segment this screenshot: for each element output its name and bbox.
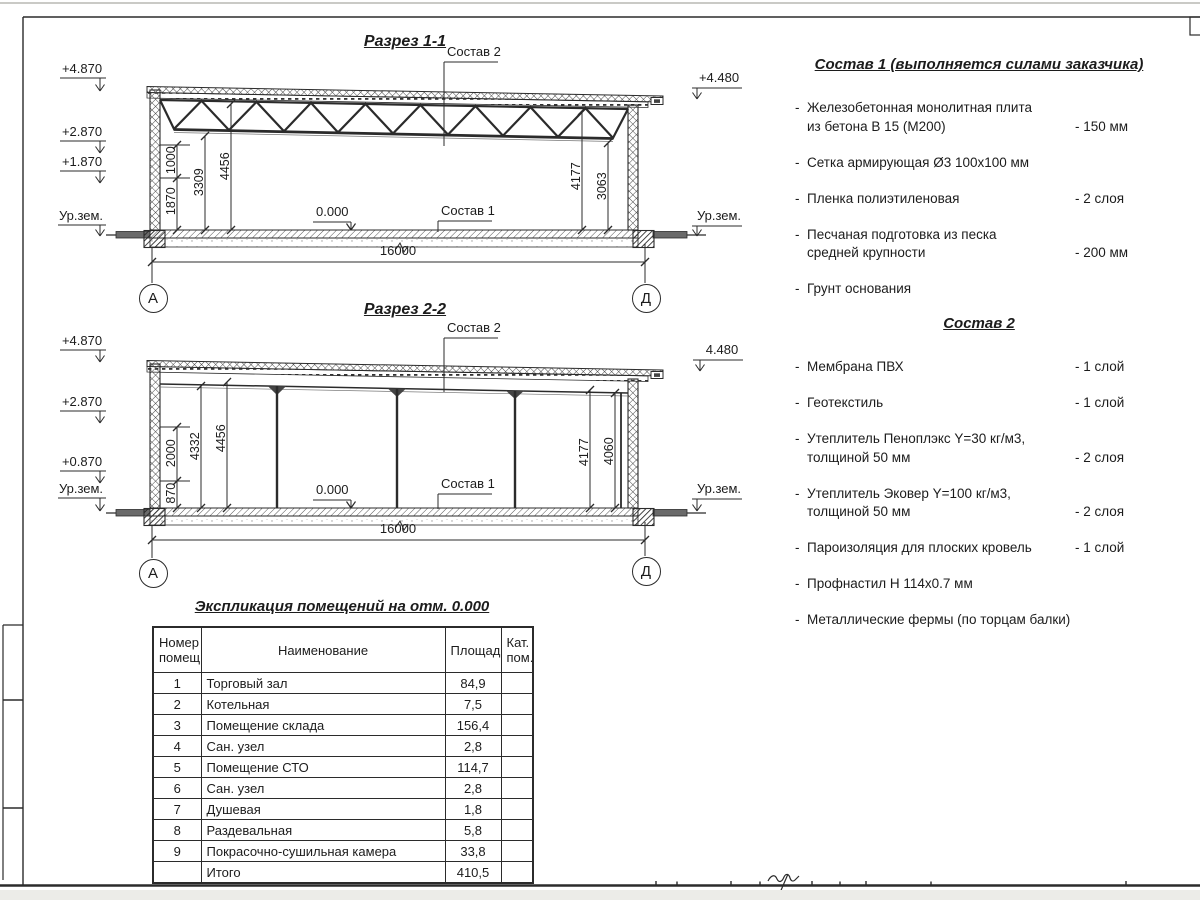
material-name: Профнастил Н 114х0.7 мм (807, 575, 1075, 594)
material-name: Песчаная подготовка из песка средней кру… (807, 226, 1075, 264)
dimension-label: 1870 (164, 181, 178, 221)
table-row: 4 Сан. узел 2,8 (153, 736, 533, 757)
material-item: - Железобетонная монолитная плита из бет… (795, 99, 1163, 137)
material-name: Сетка армирующая Ø3 100х100 мм (807, 154, 1075, 173)
material-name: Мембрана ПВХ (807, 358, 1075, 377)
cell-room-name: Торговый зал (201, 673, 445, 694)
cell-room-number: 2 (153, 694, 201, 715)
material-item: - Профнастил Н 114х0.7 мм (795, 575, 1163, 594)
axis-letter: Д (641, 563, 651, 580)
ground-level-label: Ур.зем. (694, 209, 744, 224)
ground-level-label: Ур.зем. (694, 482, 744, 497)
item-dash: - (795, 430, 807, 468)
cell-area: 7,5 (445, 694, 501, 715)
material-item: - Мембрана ПВХ - 1 слой (795, 358, 1163, 377)
zero-level-label: 0.000 (316, 483, 349, 498)
cell-category (501, 862, 533, 884)
zero-level-label: 0.000 (316, 205, 349, 220)
dimension-label: 4177 (569, 156, 583, 196)
cell-room-number: 4 (153, 736, 201, 757)
cell-area: 2,8 (445, 736, 501, 757)
cell-room-number: 9 (153, 841, 201, 862)
cell-room-name: Покрасочно-сушильная камера (201, 841, 445, 862)
item-dash: - (795, 575, 807, 594)
table-row: 5 Помещение СТО 114,7 (153, 757, 533, 778)
header-room-name: Наименование (201, 627, 445, 673)
dimension-label: 4456 (214, 418, 228, 458)
table-row: 6 Сан. узел 2,8 (153, 778, 533, 799)
leader-label-sostav2: Состав 2 (447, 321, 501, 336)
cell-area: 84,9 (445, 673, 501, 694)
material-value: - 1 слой (1075, 394, 1163, 413)
dimension-label: 2000 (164, 433, 178, 473)
item-dash: - (795, 539, 807, 558)
cell-room-number: 3 (153, 715, 201, 736)
table-header-row: Номер помещ. Наименование Площадь Кат. п… (153, 627, 533, 673)
cell-room-name: Итого (201, 862, 445, 884)
dimension-label: 4177 (577, 432, 591, 472)
item-dash: - (795, 611, 807, 630)
header-area: Площадь (445, 627, 501, 673)
cell-room-number: 6 (153, 778, 201, 799)
item-dash: - (795, 394, 807, 413)
item-dash: - (795, 485, 807, 523)
cell-area: 1,8 (445, 799, 501, 820)
material-value: - 200 мм (1075, 244, 1163, 263)
cell-category (501, 820, 533, 841)
material-item: - Металлические фермы (по торцам балки) (795, 611, 1163, 630)
dimension-label: 3063 (595, 166, 609, 206)
dimension-label: 1000 (164, 140, 178, 180)
span-dimension-label: 16000 (358, 244, 438, 259)
span-dimension-label: 16000 (358, 522, 438, 537)
table-row: Итого 410,5 (153, 862, 533, 884)
cell-room-name: Помещение склада (201, 715, 445, 736)
elevation-mark: +4.870 (58, 334, 106, 349)
item-dash: - (795, 99, 807, 137)
cell-category (501, 841, 533, 862)
elevation-mark: +2.870 (58, 395, 106, 410)
table-row: 1 Торговый зал 84,9 (153, 673, 533, 694)
explication-block: Экспликация помещений на отм. 0.000 Номе… (152, 598, 532, 884)
cell-category (501, 799, 533, 820)
axis-bubble-d: Д (632, 557, 661, 586)
axis-bubble-a: А (139, 559, 168, 588)
material-name: Пароизоляция для плоских кровель (807, 539, 1075, 558)
material-list-sostav2: Состав 2 - Мембрана ПВХ - 1 слой - Геоте… (795, 315, 1163, 647)
material-item: - Геотекстиль - 1 слой (795, 394, 1163, 413)
cell-room-name: Сан. узел (201, 736, 445, 757)
explication-table: Номер помещ. Наименование Площадь Кат. п… (152, 626, 534, 884)
material-name: Железобетонная монолитная плита из бетон… (807, 99, 1075, 137)
axis-bubble-d: Д (632, 284, 661, 313)
ground-level-label: Ур.зем. (56, 482, 106, 497)
material-item: - Песчаная подготовка из песка средней к… (795, 226, 1163, 264)
elevation-mark: +2.870 (58, 125, 106, 140)
table-row: 3 Помещение склада 156,4 (153, 715, 533, 736)
cell-area: 5,8 (445, 820, 501, 841)
cell-category (501, 778, 533, 799)
cell-category (501, 673, 533, 694)
material-item: - Сетка армирующая Ø3 100х100 мм (795, 154, 1163, 173)
leader-label-sostav1: Состав 1 (441, 204, 495, 219)
material-name: Утеплитель Эковер Y=100 кг/м3, толщиной … (807, 485, 1075, 523)
axis-bubble-a: А (139, 284, 168, 313)
cell-room-name: Раздевальная (201, 820, 445, 841)
cell-room-name: Сан. узел (201, 778, 445, 799)
material-item: - Грунт основания (795, 280, 1163, 299)
section2-title: Разрез 2-2 (330, 301, 480, 319)
cell-area: 410,5 (445, 862, 501, 884)
material-value: - 2 слоя (1075, 449, 1163, 468)
cell-area: 114,7 (445, 757, 501, 778)
sheet-bottom-strip (0, 890, 1200, 900)
elevation-mark: +4.870 (58, 62, 106, 77)
material-item: - Пленка полиэтиленовая - 2 слоя (795, 190, 1163, 209)
material-name: Пленка полиэтиленовая (807, 190, 1075, 209)
axis-letter: Д (641, 290, 651, 307)
cell-category (501, 715, 533, 736)
dimension-label: 4332 (188, 426, 202, 466)
elevation-mark: +1.870 (58, 155, 106, 170)
material-list-title: Состав 2 (795, 315, 1163, 332)
item-dash: - (795, 358, 807, 377)
material-name: Геотекстиль (807, 394, 1075, 413)
ground-level-label: Ур.зем. (56, 209, 106, 224)
header-category: Кат. пом. (501, 627, 533, 673)
axis-letter: А (148, 565, 158, 582)
axis-letter: А (148, 290, 158, 307)
material-name: Металлические фермы (по торцам балки) (807, 611, 1075, 630)
elevation-mark: 4.480 (697, 343, 747, 358)
material-value: - 1 слой (1075, 539, 1163, 558)
cell-room-name: Душевая (201, 799, 445, 820)
cell-room-name: Помещение СТО (201, 757, 445, 778)
cell-category (501, 736, 533, 757)
cell-area: 2,8 (445, 778, 501, 799)
cell-room-number: 8 (153, 820, 201, 841)
table-row: 9 Покрасочно-сушильная камера 33,8 (153, 841, 533, 862)
cell-category (501, 694, 533, 715)
material-list-title: Состав 1 (выполняется силами заказчика) (795, 56, 1163, 73)
cell-room-number (153, 862, 201, 884)
drawing-sheet: Разрез 1-1 Состав 2 Состав 1 0.000 16000… (0, 0, 1200, 900)
dimension-label: 4060 (602, 431, 616, 471)
material-item: - Утеплитель Эковер Y=100 кг/м3, толщино… (795, 485, 1163, 523)
cell-area: 33,8 (445, 841, 501, 862)
leader-label-sostav2: Состав 2 (447, 45, 501, 60)
material-value: - 2 слоя (1075, 503, 1163, 522)
dimension-label: 4456 (218, 146, 232, 186)
header-room-number: Номер помещ. (153, 627, 201, 673)
cell-room-number: 1 (153, 673, 201, 694)
cell-category (501, 757, 533, 778)
material-name: Грунт основания (807, 280, 1075, 299)
cell-room-number: 5 (153, 757, 201, 778)
material-item: - Пароизоляция для плоских кровель - 1 с… (795, 539, 1163, 558)
item-dash: - (795, 280, 807, 299)
material-item: - Утеплитель Пеноплэкс Y=30 кг/м3, толщи… (795, 430, 1163, 468)
item-dash: - (795, 226, 807, 264)
material-value: - 1 слой (1075, 358, 1163, 377)
dimension-label: 3309 (192, 162, 206, 202)
item-dash: - (795, 154, 807, 173)
material-value: - 150 мм (1075, 118, 1163, 137)
leader-label-sostav1: Состав 1 (441, 477, 495, 492)
table-row: 7 Душевая 1,8 (153, 799, 533, 820)
explication-title: Экспликация помещений на отм. 0.000 (152, 598, 532, 615)
elevation-mark: +4.480 (694, 71, 744, 86)
cell-room-number: 7 (153, 799, 201, 820)
material-value: - 2 слоя (1075, 190, 1163, 209)
material-list-sostav1: Состав 1 (выполняется силами заказчика) … (795, 56, 1163, 316)
dimension-label: 870 (164, 473, 178, 513)
table-row: 2 Котельная 7,5 (153, 694, 533, 715)
material-name: Утеплитель Пеноплэкс Y=30 кг/м3, толщино… (807, 430, 1075, 468)
item-dash: - (795, 190, 807, 209)
elevation-mark: +0.870 (58, 455, 106, 470)
cell-area: 156,4 (445, 715, 501, 736)
cell-room-name: Котельная (201, 694, 445, 715)
table-row: 8 Раздевальная 5,8 (153, 820, 533, 841)
